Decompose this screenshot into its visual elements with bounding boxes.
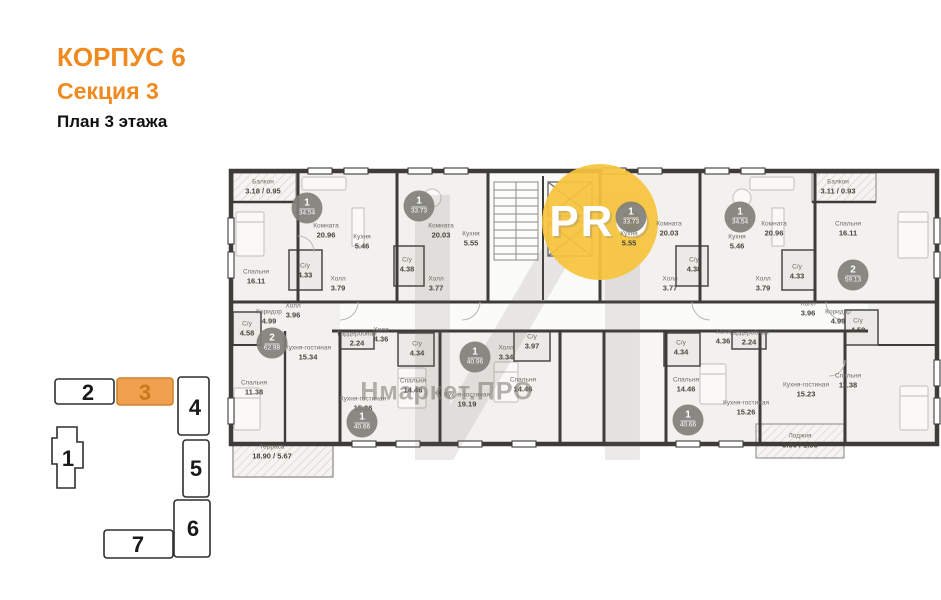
section-key-plan: 2 3 4 5 6 7 1: [40, 370, 220, 570]
apartment-badge[interactable]: 140.96: [460, 342, 491, 373]
key-plan-section-2[interactable]: 2: [55, 379, 114, 405]
key-plan-section-6[interactable]: 6: [174, 500, 210, 557]
svg-text:6: 6: [187, 516, 199, 541]
section-title: Секция 3: [57, 80, 186, 103]
key-plan-section-3-highlighted[interactable]: 3: [117, 378, 173, 405]
apartment-badge[interactable]: 133.73: [616, 202, 647, 233]
key-plan-section-4[interactable]: 4: [178, 377, 209, 435]
svg-text:4: 4: [189, 395, 202, 420]
apartment-badge[interactable]: 134.54: [292, 193, 323, 224]
balcony-left-area: [233, 173, 296, 202]
brand-watermark-text: Нмаркет.ПРО: [360, 378, 533, 407]
key-plan-section-5[interactable]: 5: [183, 440, 209, 497]
apartment-badge[interactable]: 133.73: [404, 191, 435, 222]
apartment-badge[interactable]: 262.98: [257, 328, 288, 359]
key-plan-section-1[interactable]: 1: [52, 427, 83, 488]
staircase: [494, 182, 538, 260]
loggia-area: [756, 424, 844, 458]
title-block: КОРПУС 6 Секция 3 План 3 этажа: [57, 44, 186, 130]
floor-plan-title: План 3 этажа: [57, 113, 186, 130]
apartment-badge[interactable]: 134.54: [725, 202, 756, 233]
apartment-badge[interactable]: 140.66: [673, 405, 704, 436]
balcony-right-area: [812, 173, 876, 202]
apartment-badge[interactable]: 140.66: [347, 407, 378, 438]
terrace-area: [233, 445, 333, 477]
svg-text:1: 1: [62, 446, 74, 471]
svg-text:7: 7: [132, 532, 144, 557]
building-title: КОРПУС 6: [57, 44, 186, 70]
key-plan-section-7[interactable]: 7: [104, 530, 173, 558]
svg-text:5: 5: [190, 456, 202, 481]
svg-text:2: 2: [82, 380, 94, 405]
svg-text:3: 3: [139, 380, 151, 405]
apartment-badge[interactable]: 259.13: [838, 260, 869, 291]
